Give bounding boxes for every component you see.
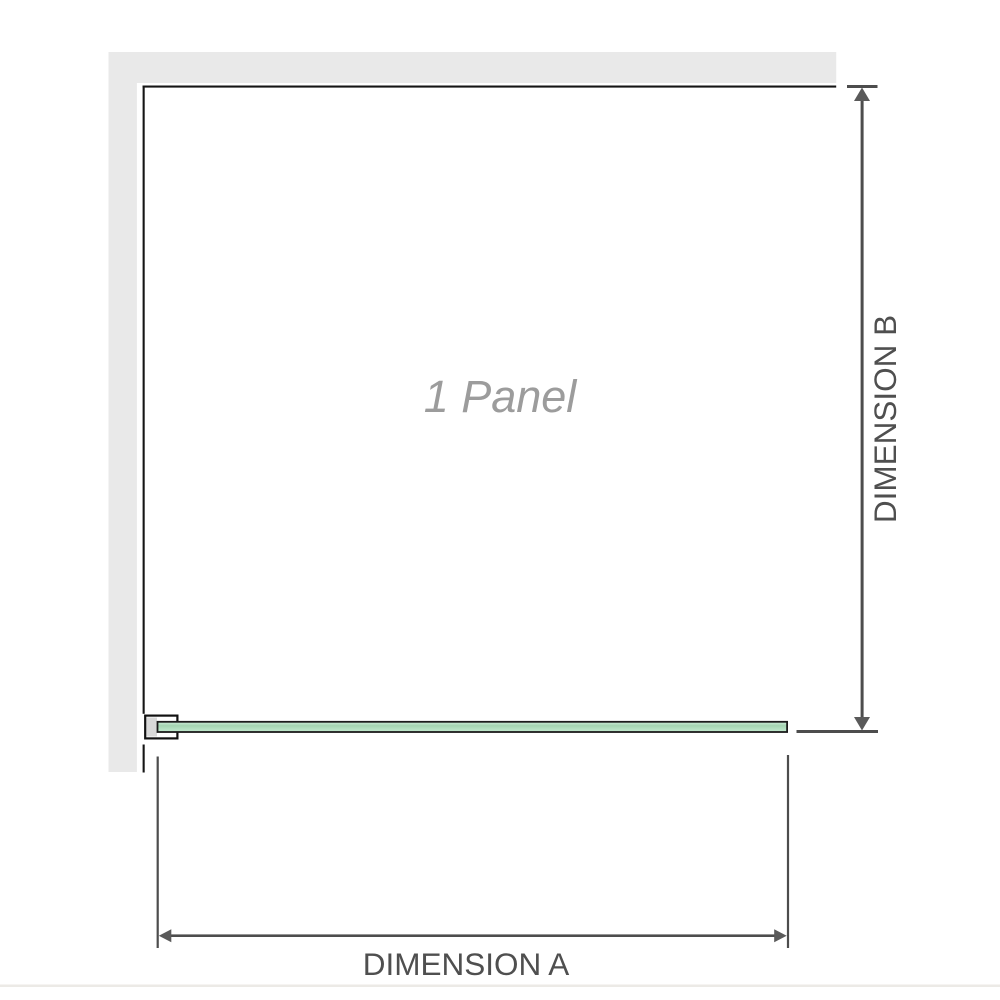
svg-text:1 Panel: 1 Panel (424, 371, 579, 422)
svg-text:DIMENSION B: DIMENSION B (867, 315, 903, 523)
svg-text:DIMENSION A: DIMENSION A (363, 946, 570, 982)
